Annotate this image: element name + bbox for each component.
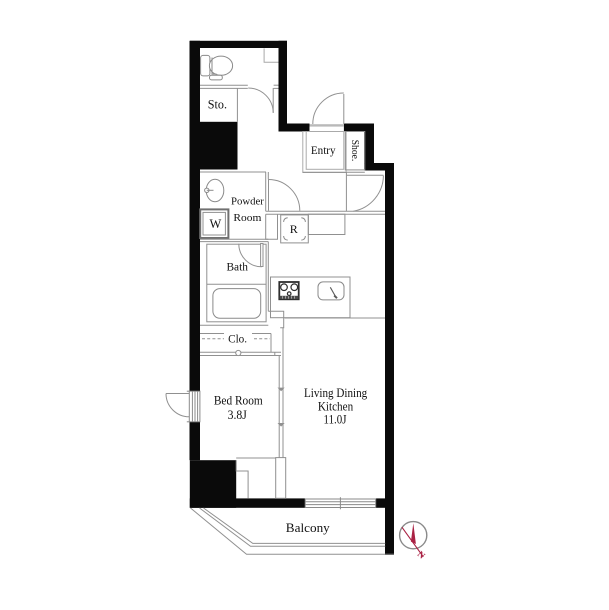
svg-text:Bed Room: Bed Room (214, 393, 263, 408)
svg-text:Clo.: Clo. (228, 332, 247, 346)
svg-text:Room: Room (233, 212, 261, 224)
svg-text:W: W (209, 217, 221, 231)
svg-text:3.8J: 3.8J (228, 407, 247, 422)
svg-text:Entry: Entry (311, 145, 336, 157)
svg-text:Balcony: Balcony (286, 521, 331, 535)
svg-text:Powder: Powder (231, 196, 264, 208)
svg-text:Sto.: Sto. (208, 97, 227, 111)
svg-text:Bath: Bath (226, 261, 248, 273)
svg-text:11.0J: 11.0J (324, 411, 347, 426)
svg-text:Shoe.: Shoe. (349, 140, 360, 162)
svg-text:R: R (290, 222, 298, 236)
